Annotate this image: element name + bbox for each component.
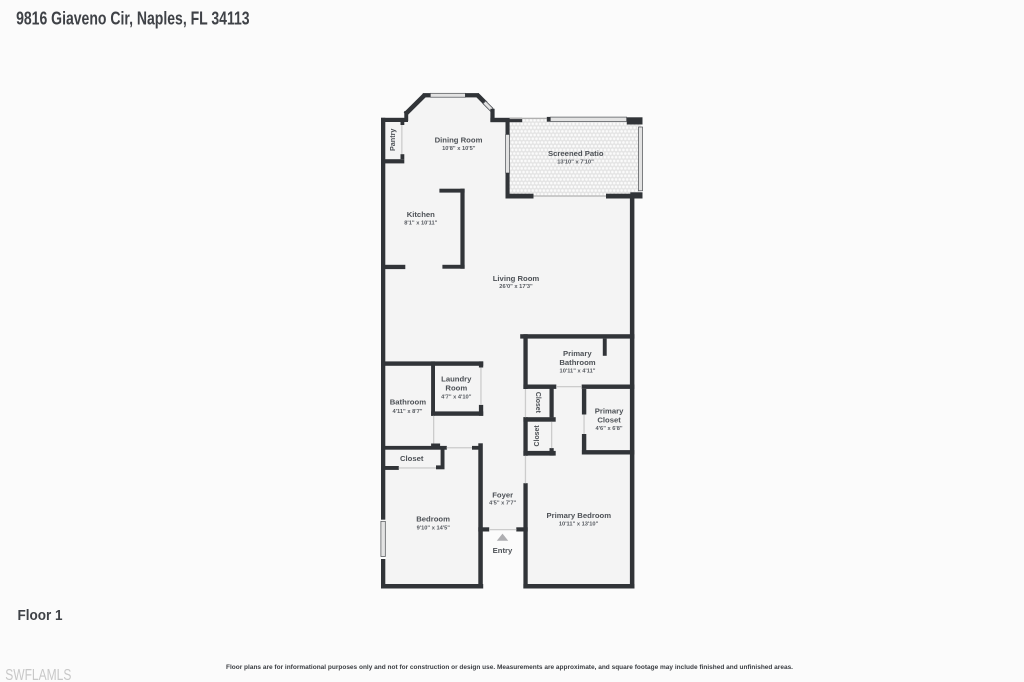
svg-text:Bathroom: Bathroom bbox=[390, 398, 426, 407]
svg-text:Entry: Entry bbox=[493, 546, 513, 555]
svg-text:10'8" x 10'5": 10'8" x 10'5" bbox=[442, 146, 476, 152]
svg-text:Bedroom: Bedroom bbox=[416, 514, 450, 523]
svg-text:8'1" x 10'11": 8'1" x 10'11" bbox=[404, 220, 437, 226]
svg-text:Bathroom: Bathroom bbox=[559, 358, 595, 367]
svg-text:Living Room: Living Room bbox=[493, 274, 540, 283]
svg-text:9'10" x 14'5": 9'10" x 14'5" bbox=[417, 526, 451, 532]
svg-text:10'11" x 4'11": 10'11" x 4'11" bbox=[560, 369, 596, 375]
svg-text:4'7" x 4'10": 4'7" x 4'10" bbox=[441, 395, 472, 401]
svg-text:Primary: Primary bbox=[595, 406, 624, 415]
svg-text:4'11" x 8'7": 4'11" x 8'7" bbox=[393, 409, 423, 415]
svg-text:Foyer: Foyer bbox=[492, 490, 513, 499]
svg-text:Screened Patio: Screened Patio bbox=[548, 149, 604, 158]
svg-text:Primary: Primary bbox=[563, 349, 592, 358]
svg-text:Closet: Closet bbox=[400, 454, 424, 463]
svg-text:Closet: Closet bbox=[534, 392, 541, 414]
svg-text:Room: Room bbox=[445, 384, 467, 393]
svg-text:9816 Giaveno Cir, Naples, FL 3: 9816 Giaveno Cir, Naples, FL 34113 bbox=[16, 9, 250, 29]
svg-text:Floor plans are for informatio: Floor plans are for informational purpos… bbox=[226, 664, 793, 671]
svg-text:10'11" x 13'10": 10'11" x 13'10" bbox=[559, 522, 599, 528]
svg-text:4'5" x 7'7": 4'5" x 7'7" bbox=[489, 501, 516, 507]
svg-text:4'6" x 6'8": 4'6" x 6'8" bbox=[596, 426, 623, 432]
svg-text:13'10" x 7'10": 13'10" x 7'10" bbox=[557, 159, 594, 165]
svg-text:Floor 1: Floor 1 bbox=[18, 607, 63, 624]
svg-text:Laundry: Laundry bbox=[441, 375, 472, 384]
svg-text:Pantry: Pantry bbox=[388, 129, 397, 151]
svg-text:Primary Bedroom: Primary Bedroom bbox=[547, 511, 612, 520]
svg-text:26'0" x 17'3": 26'0" x 17'3" bbox=[499, 284, 533, 290]
svg-text:Closet: Closet bbox=[534, 425, 541, 447]
svg-text:SWFLAMLS: SWFLAMLS bbox=[5, 667, 71, 682]
svg-text:Closet: Closet bbox=[597, 415, 621, 424]
svg-text:Dining Room: Dining Room bbox=[435, 135, 483, 144]
svg-text:Kitchen: Kitchen bbox=[407, 210, 435, 219]
